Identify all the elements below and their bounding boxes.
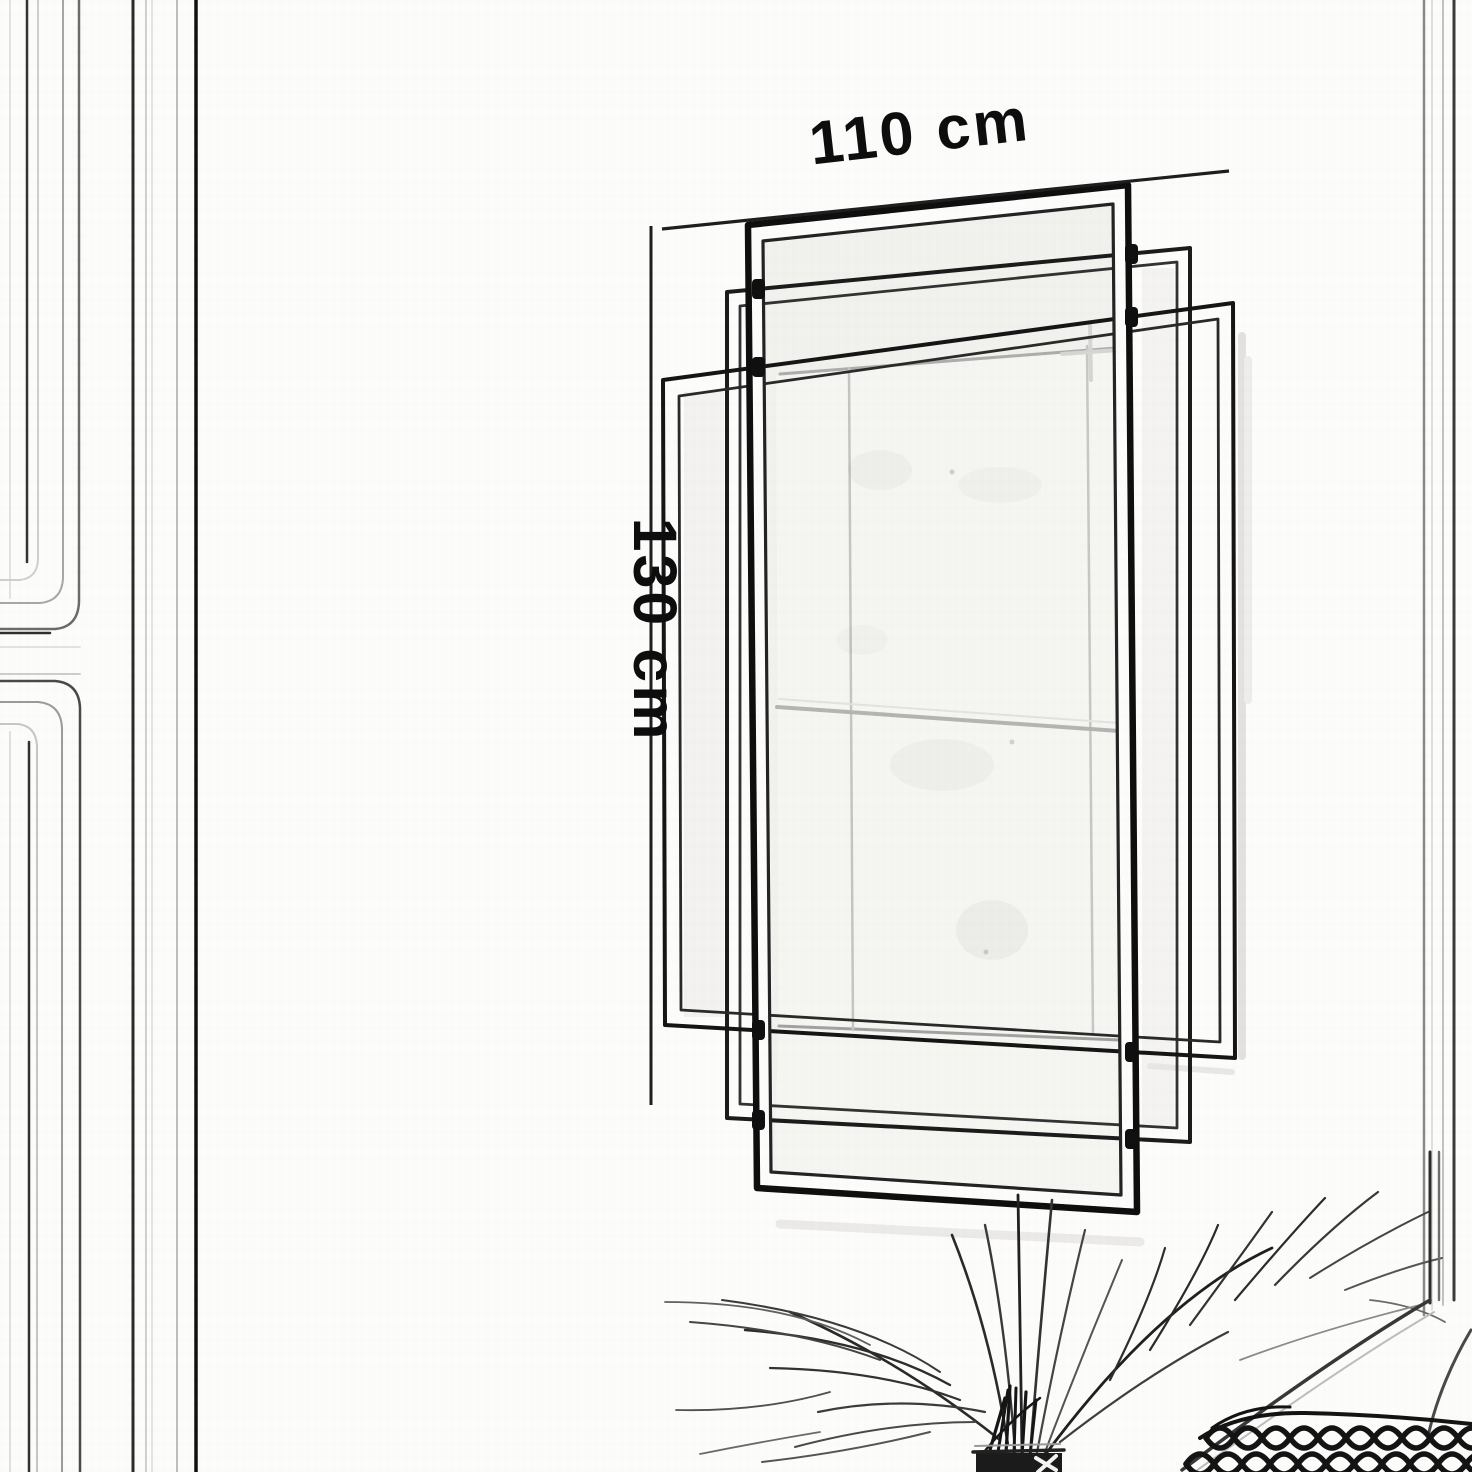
palm-plant [665,1192,1445,1462]
sketch-scene: 110 cm 130 cm [0,0,1472,1472]
chair-back-curve-echo [1196,1312,1434,1471]
wall-trim-strip [133,0,196,1472]
palm-frond-left [665,1300,1000,1462]
wall-panel-rail [0,647,80,674]
wall-mirror [663,185,1248,1242]
height-dimension-label: 130 cm [621,518,689,743]
sketch-canvas: 110 cm 130 cm [0,0,1472,1472]
wall-panel-lower [0,681,80,1472]
chair-back-pole [1430,1152,1439,1303]
rattan-chair [1182,1152,1472,1472]
chair-weave [1186,1407,1472,1472]
wall-panel-upper [0,0,79,633]
wall-corner-right [1424,0,1454,1315]
wall-paneling-left [0,0,196,1472]
chair-armrest-curve [1429,1330,1471,1432]
mirror-glass [765,206,1120,1193]
width-dimension-label: 110 cm [806,85,1034,178]
